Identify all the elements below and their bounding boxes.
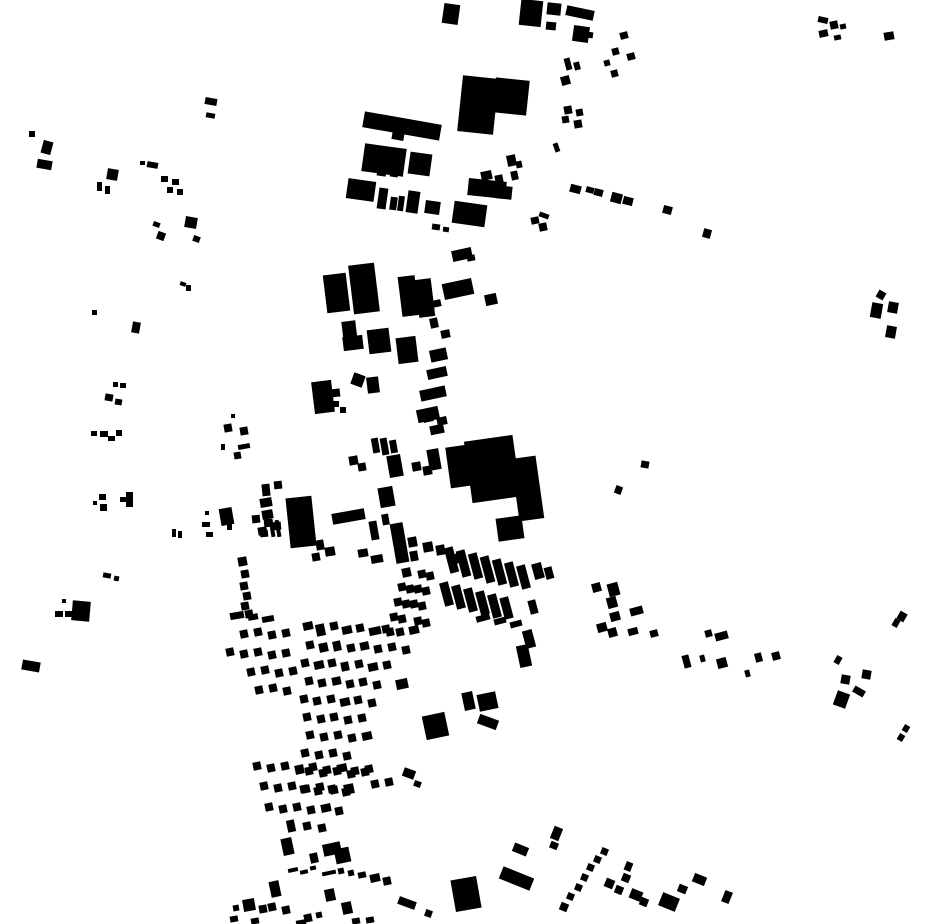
- building: [202, 522, 210, 527]
- building: [333, 730, 342, 739]
- building: [227, 522, 232, 530]
- building: [281, 628, 290, 637]
- building: [120, 383, 126, 388]
- building: [239, 581, 248, 590]
- building: [421, 586, 430, 595]
- building: [274, 668, 283, 677]
- building: [357, 548, 368, 558]
- building: [260, 530, 269, 538]
- building: [55, 611, 63, 617]
- building: [422, 712, 449, 740]
- building: [282, 686, 291, 695]
- building: [115, 398, 123, 405]
- building: [315, 782, 324, 791]
- building: [205, 511, 209, 515]
- building: [372, 680, 381, 689]
- building: [267, 902, 276, 911]
- building: [370, 779, 379, 788]
- building: [239, 649, 248, 658]
- building: [100, 431, 108, 437]
- building: [206, 532, 213, 537]
- building: [239, 629, 248, 638]
- building: [425, 571, 434, 580]
- building: [405, 584, 414, 593]
- building: [575, 108, 583, 116]
- building: [357, 462, 366, 471]
- building: [401, 599, 410, 608]
- building: [306, 805, 315, 814]
- building: [264, 519, 273, 528]
- building: [330, 388, 341, 397]
- building: [261, 484, 270, 497]
- building: [258, 904, 267, 913]
- building: [355, 623, 364, 632]
- building: [829, 20, 838, 29]
- building: [259, 781, 268, 790]
- building: [347, 869, 354, 876]
- building: [71, 600, 91, 621]
- building: [62, 599, 66, 603]
- building: [300, 658, 309, 667]
- building: [105, 186, 110, 194]
- building: [104, 393, 113, 401]
- building: [337, 867, 344, 874]
- building: [233, 905, 240, 912]
- building: [495, 185, 512, 200]
- building: [254, 685, 263, 694]
- building: [233, 451, 241, 459]
- building: [302, 821, 311, 830]
- building: [267, 650, 276, 659]
- building: [587, 32, 594, 39]
- building: [273, 783, 282, 792]
- building: [329, 785, 338, 794]
- building: [519, 0, 544, 27]
- building: [422, 541, 434, 553]
- building: [409, 599, 418, 608]
- building: [300, 748, 309, 757]
- building: [327, 658, 336, 667]
- building: [240, 601, 249, 610]
- building: [29, 131, 35, 137]
- building: [287, 781, 296, 790]
- building: [432, 223, 441, 230]
- building: [329, 712, 338, 721]
- building: [357, 713, 366, 722]
- building: [395, 627, 404, 636]
- building: [316, 714, 325, 723]
- building: [561, 115, 569, 123]
- building: [281, 648, 290, 657]
- building: [346, 643, 355, 652]
- building: [450, 876, 481, 912]
- building: [253, 627, 262, 636]
- building: [237, 556, 247, 566]
- building: [347, 733, 356, 742]
- building: [457, 75, 499, 134]
- building: [223, 423, 232, 432]
- building: [389, 612, 398, 621]
- building: [343, 715, 352, 724]
- building: [328, 748, 337, 757]
- building: [92, 310, 97, 315]
- building: [408, 152, 433, 177]
- building: [253, 647, 262, 656]
- building: [364, 764, 373, 773]
- building: [108, 436, 115, 441]
- building: [443, 227, 450, 233]
- building: [266, 763, 275, 772]
- building: [452, 201, 488, 227]
- building: [411, 461, 421, 471]
- building: [387, 642, 396, 651]
- building: [264, 802, 273, 811]
- building: [413, 616, 422, 625]
- building: [242, 898, 256, 912]
- building: [281, 905, 290, 914]
- building: [329, 621, 338, 630]
- building: [221, 444, 225, 450]
- building: [305, 640, 314, 649]
- building: [285, 496, 316, 548]
- building: [318, 642, 329, 653]
- building: [883, 31, 894, 41]
- building: [397, 614, 406, 623]
- building: [292, 802, 301, 811]
- building-footprint-map: [0, 0, 930, 924]
- building: [342, 335, 364, 351]
- building: [348, 455, 358, 465]
- building: [161, 176, 168, 182]
- building: [301, 784, 310, 793]
- building: [350, 766, 359, 775]
- building: [840, 674, 850, 684]
- building: [116, 430, 122, 436]
- building: [294, 764, 305, 775]
- building: [178, 531, 182, 538]
- building: [106, 168, 119, 181]
- building: [305, 730, 314, 739]
- building: [252, 515, 261, 524]
- building: [261, 509, 273, 520]
- building: [93, 501, 97, 505]
- building: [640, 460, 649, 468]
- building: [333, 401, 339, 407]
- building: [99, 494, 106, 500]
- building: [367, 328, 392, 355]
- building: [231, 414, 235, 418]
- building: [302, 712, 311, 721]
- building: [324, 546, 335, 557]
- building: [242, 591, 251, 600]
- building: [409, 550, 419, 561]
- building: [377, 169, 387, 176]
- building: [563, 105, 572, 114]
- building: [114, 576, 120, 582]
- building: [304, 676, 313, 685]
- building: [354, 659, 363, 668]
- building: [167, 187, 173, 193]
- building: [274, 481, 283, 490]
- building: [272, 522, 282, 531]
- building: [288, 666, 297, 675]
- building: [186, 285, 191, 291]
- building: [442, 3, 461, 25]
- building: [100, 504, 107, 511]
- building: [317, 823, 326, 832]
- building: [496, 515, 525, 541]
- building: [424, 200, 441, 215]
- building: [113, 382, 118, 387]
- building: [334, 847, 352, 865]
- building: [382, 660, 391, 669]
- building: [319, 732, 328, 741]
- building: [314, 750, 323, 759]
- building: [367, 698, 376, 707]
- building: [381, 624, 390, 633]
- building: [315, 911, 322, 918]
- building: [393, 597, 402, 606]
- building: [346, 178, 377, 202]
- building: [252, 761, 261, 770]
- building: [546, 2, 561, 15]
- building: [140, 161, 145, 165]
- building: [401, 645, 410, 654]
- building: [342, 751, 351, 760]
- building: [353, 695, 362, 704]
- building: [311, 552, 320, 561]
- building: [120, 497, 126, 502]
- building: [172, 179, 179, 185]
- building: [326, 694, 335, 703]
- building: [268, 683, 277, 692]
- building: [343, 783, 355, 795]
- building: [308, 762, 317, 771]
- building: [267, 630, 276, 639]
- building: [97, 182, 102, 191]
- building: [887, 301, 899, 314]
- building: [366, 376, 380, 393]
- building: [246, 667, 255, 676]
- building: [421, 618, 430, 627]
- building: [397, 582, 406, 591]
- map-canvas: [0, 0, 930, 924]
- building: [177, 189, 183, 195]
- building: [280, 761, 289, 770]
- building: [395, 336, 418, 364]
- building: [322, 765, 331, 774]
- building: [861, 669, 871, 679]
- building: [126, 492, 133, 507]
- building: [358, 677, 367, 686]
- building: [384, 777, 393, 786]
- building: [417, 601, 426, 610]
- building: [492, 77, 529, 115]
- building: [345, 679, 354, 688]
- building: [334, 806, 343, 815]
- building: [315, 539, 325, 550]
- building: [278, 804, 287, 813]
- building: [184, 216, 198, 229]
- building: [299, 694, 308, 703]
- building: [573, 119, 582, 128]
- building: [538, 222, 547, 231]
- building: [401, 567, 412, 578]
- building: [225, 647, 234, 656]
- building: [340, 407, 346, 413]
- building: [885, 325, 897, 339]
- building: [172, 529, 176, 537]
- building: [417, 569, 426, 578]
- building: [239, 426, 248, 435]
- building: [240, 569, 249, 578]
- building: [382, 876, 391, 885]
- building: [407, 536, 418, 547]
- building: [91, 431, 97, 436]
- building: [312, 696, 321, 705]
- building: [413, 584, 422, 593]
- building: [546, 21, 557, 30]
- building: [323, 273, 350, 314]
- building: [317, 678, 326, 687]
- building: [373, 644, 382, 653]
- building: [260, 665, 269, 674]
